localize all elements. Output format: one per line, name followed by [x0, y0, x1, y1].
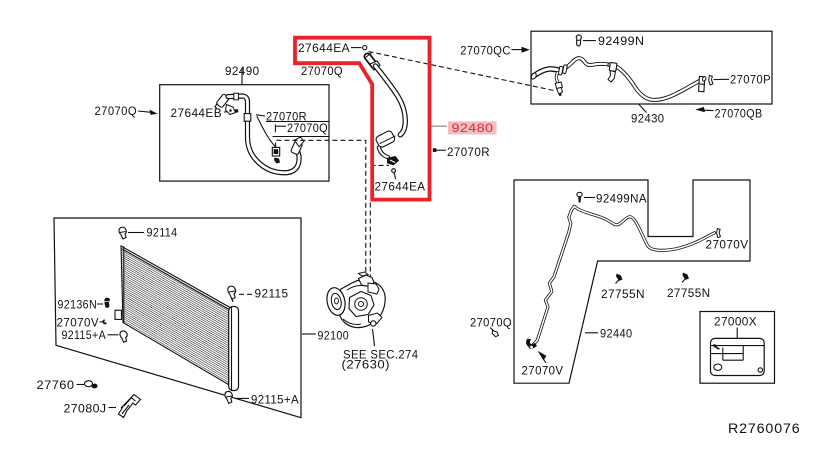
svg-text:27755N: 27755N: [667, 288, 711, 300]
svg-text:27070Q: 27070Q: [287, 123, 328, 135]
svg-text:27070P: 27070P: [730, 74, 771, 86]
svg-text:27070QC: 27070QC: [460, 46, 511, 58]
svg-text:92100: 92100: [318, 331, 350, 343]
svg-text:92114: 92114: [147, 228, 178, 240]
svg-text:27070V: 27070V: [522, 366, 564, 378]
svg-text:92115+A: 92115+A: [62, 330, 107, 342]
svg-text:92499N: 92499N: [598, 36, 645, 48]
svg-text:27080J: 27080J: [64, 404, 107, 416]
svg-text:27070Q: 27070Q: [95, 106, 138, 118]
svg-text:92480: 92480: [452, 123, 494, 135]
svg-text:27000X: 27000X: [714, 317, 757, 329]
svg-text:27644EA: 27644EA: [298, 43, 350, 55]
svg-text:27070V: 27070V: [706, 239, 749, 251]
svg-text:27760: 27760: [37, 380, 75, 392]
svg-text:27070QB: 27070QB: [715, 108, 763, 120]
svg-text:92440: 92440: [600, 329, 633, 341]
svg-text:92136N: 92136N: [58, 300, 98, 312]
svg-text:(27630): (27630): [342, 360, 391, 372]
svg-text:27070V: 27070V: [57, 318, 100, 330]
svg-text:27070R: 27070R: [447, 147, 490, 159]
svg-text:92430: 92430: [631, 114, 665, 126]
svg-text:92115: 92115: [255, 289, 289, 301]
svg-text:27644EB: 27644EB: [171, 108, 223, 120]
svg-text:27644EA: 27644EA: [375, 182, 426, 194]
svg-text:R2760076: R2760076: [728, 421, 801, 436]
svg-text:92115+A: 92115+A: [251, 395, 299, 407]
svg-text:27755N: 27755N: [601, 289, 645, 301]
svg-text:27070Q: 27070Q: [301, 66, 343, 78]
svg-text:92499NA: 92499NA: [596, 194, 647, 206]
